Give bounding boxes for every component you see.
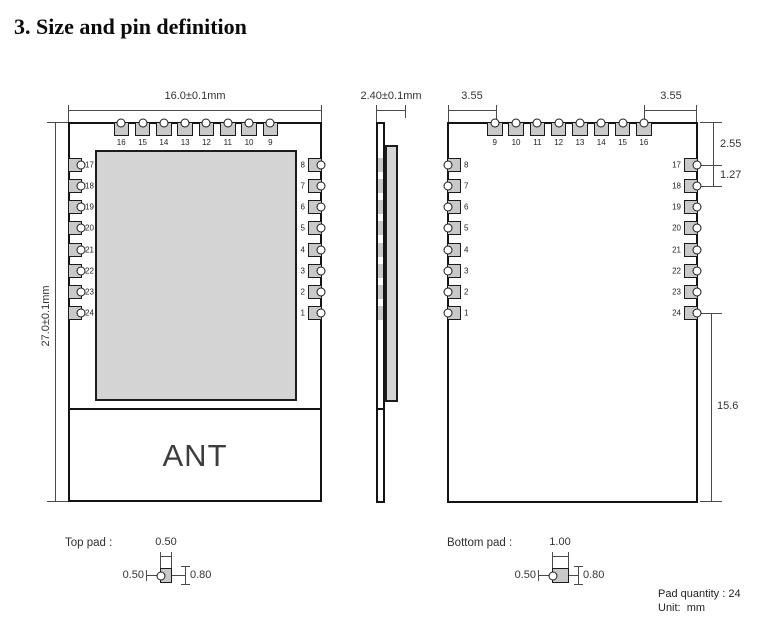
- pin-12-number: 12: [554, 138, 563, 147]
- side-pad-segment: [378, 221, 383, 235]
- dim-tick: [568, 552, 569, 568]
- pin-2-number: 2: [301, 287, 305, 296]
- castellation-notch: [444, 182, 453, 191]
- pin-10-pad: [508, 122, 524, 136]
- pitch-dim-text: 1.27: [720, 169, 741, 181]
- pin-10-number: 10: [512, 138, 521, 147]
- dim-tick: [171, 552, 172, 568]
- castellation-notch: [575, 119, 584, 128]
- pin-8-pad: [308, 158, 322, 172]
- side-pad-segment: [378, 306, 383, 320]
- side-pad-segment: [378, 264, 383, 278]
- castellation-notch: [317, 245, 326, 254]
- dim-line: [644, 110, 697, 111]
- castellation-notch: [266, 119, 275, 128]
- front-view-shield: [95, 150, 297, 401]
- pin-24-number: 24: [85, 308, 94, 317]
- pin-10-number: 10: [245, 138, 254, 147]
- pin-23-pad: [684, 285, 698, 299]
- castellation-notch: [317, 224, 326, 233]
- castellation-notch: [693, 287, 702, 296]
- pad-quantity-text: Pad quantity : 24: [658, 588, 741, 600]
- pin-16-number: 16: [117, 138, 126, 147]
- page: 3. Size and pin definition ANT 16.0±0.1m…: [0, 0, 776, 624]
- pin-11-number: 11: [533, 138, 541, 147]
- castellation-notch: [597, 119, 606, 128]
- pin-20-number: 20: [672, 224, 681, 233]
- ant-label: ANT: [68, 438, 322, 474]
- pin-2-pad: [308, 285, 322, 299]
- pin-17-number: 17: [672, 161, 681, 170]
- castellation-notch: [317, 161, 326, 170]
- pin-1-pad: [308, 306, 322, 320]
- dim-tick: [47, 501, 68, 502]
- pin-4-pad: [447, 243, 461, 257]
- pin-5-pad: [308, 221, 322, 235]
- pin-18-pad: [68, 179, 82, 193]
- castellation-notch: [693, 245, 702, 254]
- pin-2-pad: [447, 285, 461, 299]
- pin-18-number: 18: [672, 182, 681, 191]
- dim-line: [448, 110, 497, 111]
- side-pad-segment: [378, 158, 383, 172]
- pin-18-pad: [684, 179, 698, 193]
- dim-line: [569, 575, 578, 576]
- castellation-notch: [444, 224, 453, 233]
- dim-tick: [181, 584, 190, 585]
- ant-area-dim-text: 15.6: [717, 400, 738, 412]
- top-pad-depth-text: 0.50: [123, 569, 144, 581]
- pin-9-number: 9: [268, 138, 272, 147]
- dim-tick: [405, 105, 406, 118]
- dim-line: [713, 122, 714, 186]
- back-view-module-outline: [447, 122, 698, 503]
- castellation-notch: [549, 571, 558, 580]
- castellation-notch: [317, 266, 326, 275]
- bottom-pad-height-text: 0.80: [583, 569, 604, 581]
- castellation-notch: [693, 266, 702, 275]
- dim-tick: [538, 570, 539, 581]
- castellation-notch: [245, 119, 254, 128]
- pin-13-pad: [572, 122, 588, 136]
- pin-11-pad: [220, 122, 236, 136]
- bottom-pad-drawing: [552, 568, 569, 583]
- pin-24-number: 24: [672, 308, 681, 317]
- pin-17-pad: [68, 158, 82, 172]
- pin-2-number: 2: [464, 287, 468, 296]
- castellation-notch: [554, 119, 563, 128]
- dim-tick: [181, 566, 190, 567]
- pin-15-number: 15: [138, 138, 147, 147]
- pin-22-number: 22: [672, 266, 681, 275]
- castellation-notch: [618, 119, 627, 128]
- pin-23-pad: [68, 285, 82, 299]
- pin-15-pad: [615, 122, 631, 136]
- dim-tick: [700, 122, 722, 123]
- bottom-pad-label: Bottom pad :: [447, 537, 512, 549]
- side-pad-segment: [378, 179, 383, 193]
- dim-line: [578, 566, 579, 585]
- bottom-pad-width-text: 1.00: [549, 536, 570, 548]
- castellation-notch: [202, 119, 211, 128]
- pin-19-pad: [68, 200, 82, 214]
- pin-14-number: 14: [159, 138, 168, 147]
- pin-5-number: 5: [464, 224, 468, 233]
- dim-tick: [700, 165, 722, 166]
- castellation-notch: [693, 203, 702, 212]
- side-thickness-dim-text: 2.40±0.1mm: [360, 90, 421, 102]
- castellation-notch: [317, 287, 326, 296]
- pin-7-number: 7: [464, 182, 468, 191]
- dim-tick: [376, 105, 377, 122]
- pin-10-pad: [241, 122, 257, 136]
- pin-20-pad: [684, 221, 698, 235]
- castellation-notch: [444, 161, 453, 170]
- side-pad-segment: [378, 243, 383, 257]
- pin-1-pad: [447, 306, 461, 320]
- edge-to-pin-dim-text: 2.55: [720, 138, 741, 150]
- castellation-notch: [317, 203, 326, 212]
- pin-6-pad: [447, 200, 461, 214]
- castellation-notch: [181, 119, 190, 128]
- pin-17-number: 17: [85, 161, 94, 170]
- castellation-notch: [444, 308, 453, 317]
- pin-7-number: 7: [301, 182, 305, 191]
- front-height-dim-text: 27.0±0.1mm: [40, 285, 52, 346]
- pin-4-pad: [308, 243, 322, 257]
- pin-3-pad: [447, 264, 461, 278]
- dim-line: [185, 566, 186, 585]
- pin-22-pad: [684, 264, 698, 278]
- castellation-notch: [639, 119, 648, 128]
- pin-12-pad: [551, 122, 567, 136]
- castellation-notch: [693, 224, 702, 233]
- pin-19-number: 19: [85, 203, 94, 212]
- dim-tick: [321, 105, 322, 122]
- pin-22-pad: [68, 264, 82, 278]
- castellation-notch: [138, 119, 147, 128]
- side-pad-segment: [378, 285, 383, 299]
- pin-20-number: 20: [85, 224, 94, 233]
- dim-line: [711, 313, 712, 502]
- castellation-notch: [223, 119, 232, 128]
- castellation-notch: [693, 182, 702, 191]
- pin-5-pad: [447, 221, 461, 235]
- pin-1-number: 1: [464, 308, 468, 317]
- dim-tick: [574, 566, 583, 567]
- pin-14-number: 14: [597, 138, 606, 147]
- castellation-notch: [693, 161, 702, 170]
- pin-24-pad: [684, 306, 698, 320]
- top-pad-width-text: 0.50: [155, 536, 176, 548]
- pin-13-number: 13: [181, 138, 190, 147]
- dim-tick: [696, 105, 697, 122]
- dim-tick: [146, 570, 147, 581]
- side-view-shield: [385, 145, 398, 402]
- castellation-notch: [533, 119, 542, 128]
- castellation-notch: [490, 119, 499, 128]
- pin-5-number: 5: [301, 224, 305, 233]
- dim-tick: [448, 105, 449, 122]
- castellation-notch: [693, 308, 702, 317]
- pin-21-number: 21: [85, 245, 94, 254]
- castellation-notch: [317, 182, 326, 191]
- pin-24-pad: [68, 306, 82, 320]
- castellation-notch: [512, 119, 521, 128]
- back-right-offset-dim-text: 3.55: [660, 90, 681, 102]
- pin-20-pad: [68, 221, 82, 235]
- pin-21-pad: [684, 243, 698, 257]
- dim-line: [55, 122, 56, 502]
- dim-tick: [700, 186, 722, 187]
- pin-16-pad: [114, 122, 130, 136]
- pin-23-number: 23: [85, 287, 94, 296]
- castellation-notch: [117, 119, 126, 128]
- dim-line: [552, 556, 569, 557]
- pin-8-number: 8: [464, 161, 468, 170]
- pin-11-number: 11: [224, 138, 232, 147]
- dim-tick: [574, 584, 583, 585]
- pin-3-pad: [308, 264, 322, 278]
- pin-11-pad: [530, 122, 546, 136]
- top-pad-label: Top pad :: [65, 537, 112, 549]
- pin-3-number: 3: [301, 266, 305, 275]
- pin-22-number: 22: [85, 266, 94, 275]
- pin-14-pad: [156, 122, 172, 136]
- pin-6-number: 6: [301, 203, 305, 212]
- pin-9-pad: [487, 122, 503, 136]
- castellation-notch: [444, 245, 453, 254]
- bottom-pad-depth-text: 0.50: [515, 569, 536, 581]
- pin-1-number: 1: [301, 308, 305, 317]
- castellation-notch: [159, 119, 168, 128]
- dim-tick: [47, 122, 68, 123]
- pin-7-pad: [447, 179, 461, 193]
- pin-9-number: 9: [493, 138, 497, 147]
- front-width-dim-text: 16.0±0.1mm: [164, 90, 225, 102]
- pin-23-number: 23: [672, 287, 681, 296]
- pin-6-pad: [308, 200, 322, 214]
- pin-8-pad: [447, 158, 461, 172]
- pin-12-number: 12: [202, 138, 211, 147]
- pin-19-pad: [684, 200, 698, 214]
- pin-19-number: 19: [672, 203, 681, 212]
- dim-tick: [68, 105, 69, 122]
- castellation-notch: [444, 266, 453, 275]
- dim-line: [172, 575, 185, 576]
- castellation-notch: [157, 571, 166, 580]
- front-view-ant-divider: [68, 408, 322, 410]
- pin-4-number: 4: [464, 245, 468, 254]
- pin-8-number: 8: [301, 161, 305, 170]
- pin-13-number: 13: [575, 138, 584, 147]
- castellation-notch: [444, 287, 453, 296]
- pin-17-pad: [684, 158, 698, 172]
- dim-line: [68, 110, 322, 111]
- top-pad-height-text: 0.80: [190, 569, 211, 581]
- pin-6-number: 6: [464, 203, 468, 212]
- top-pad-drawing: [160, 568, 172, 583]
- pin-12-pad: [199, 122, 215, 136]
- pin-3-number: 3: [464, 266, 468, 275]
- pin-15-pad: [135, 122, 151, 136]
- pin-21-number: 21: [672, 245, 681, 254]
- unit-text: Unit: mm: [658, 602, 705, 614]
- castellation-notch: [444, 203, 453, 212]
- pin-15-number: 15: [618, 138, 627, 147]
- pin-7-pad: [308, 179, 322, 193]
- pin-16-number: 16: [639, 138, 648, 147]
- pin-14-pad: [594, 122, 610, 136]
- side-pad-segment: [378, 200, 383, 214]
- pin-18-number: 18: [85, 182, 94, 191]
- dim-tick: [552, 552, 553, 568]
- pin-21-pad: [68, 243, 82, 257]
- section-title: 3. Size and pin definition: [14, 14, 247, 40]
- castellation-notch: [317, 308, 326, 317]
- dim-tick: [160, 552, 161, 568]
- pin-4-number: 4: [301, 245, 305, 254]
- dim-line: [376, 110, 406, 111]
- pin-13-pad: [177, 122, 193, 136]
- pin-16-pad: [636, 122, 652, 136]
- side-view-ant-divider: [376, 408, 385, 410]
- pin-9-pad: [263, 122, 279, 136]
- back-left-offset-dim-text: 3.55: [461, 90, 482, 102]
